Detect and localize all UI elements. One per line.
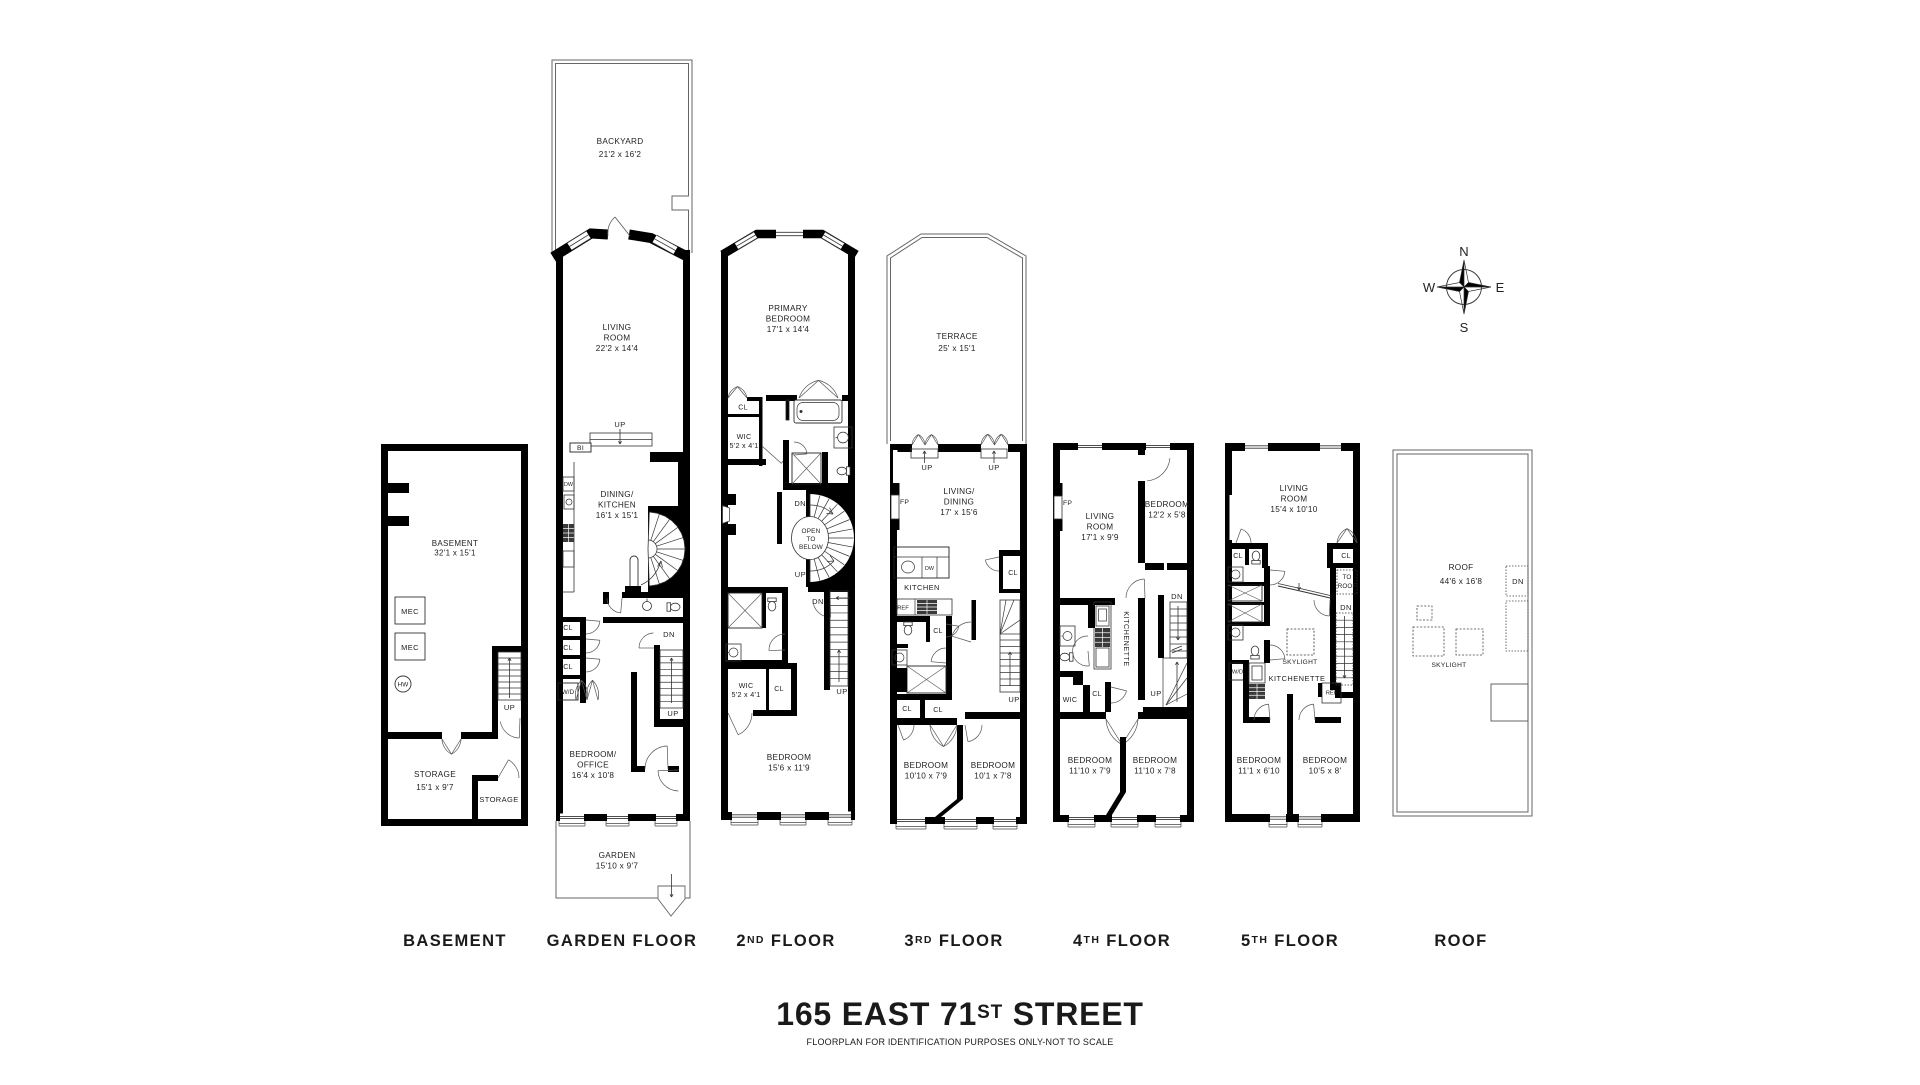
svg-text:PRIMARY: PRIMARY xyxy=(768,304,807,313)
svg-text:UP: UP xyxy=(614,420,625,429)
svg-text:TERRACE: TERRACE xyxy=(936,332,977,341)
svg-text:BI: BI xyxy=(577,445,584,452)
svg-text:10'1 x 7'8: 10'1 x 7'8 xyxy=(974,772,1012,781)
svg-text:CL: CL xyxy=(1233,553,1243,560)
svg-text:CL: CL xyxy=(933,707,943,714)
svg-text:KITCHEN: KITCHEN xyxy=(904,583,940,592)
svg-text:BEDROOM: BEDROOM xyxy=(904,761,948,770)
svg-text:15'6 x 11'9: 15'6 x 11'9 xyxy=(768,764,810,773)
svg-text:FLOORPLAN FOR IDENTIFICATION P: FLOORPLAN FOR IDENTIFICATION PURPOSES ON… xyxy=(807,1037,1114,1047)
svg-text:UP: UP xyxy=(1150,689,1161,698)
svg-text:DW: DW xyxy=(564,482,574,488)
svg-text:5'2 x 4'1: 5'2 x 4'1 xyxy=(729,441,758,450)
svg-text:KITCHENETTE: KITCHENETTE xyxy=(1122,611,1131,666)
svg-text:BEDROOM: BEDROOM xyxy=(1133,756,1177,765)
svg-text:STORAGE: STORAGE xyxy=(479,795,518,804)
svg-text:CL: CL xyxy=(1008,570,1018,577)
svg-text:DW: DW xyxy=(925,566,935,572)
svg-text:UP: UP xyxy=(504,703,515,712)
svg-text:W/D: W/D xyxy=(1232,670,1243,676)
svg-text:MEC: MEC xyxy=(401,643,419,652)
svg-text:OPEN: OPEN xyxy=(802,528,821,535)
svg-text:17'1 x 9'9: 17'1 x 9'9 xyxy=(1081,533,1119,542)
svg-text:DINING: DINING xyxy=(944,498,974,507)
svg-text:ROOM: ROOM xyxy=(604,334,631,343)
svg-text:UP: UP xyxy=(988,463,999,472)
svg-text:ROOM: ROOM xyxy=(1281,495,1308,504)
svg-text:GARDEN: GARDEN xyxy=(599,851,636,860)
svg-text:25' x 15'1: 25' x 15'1 xyxy=(938,344,976,353)
svg-text:WIC: WIC xyxy=(1063,697,1078,704)
svg-text:17' x 15'6: 17' x 15'6 xyxy=(940,508,978,517)
svg-text:11'1 x 6'10: 11'1 x 6'10 xyxy=(1238,767,1280,776)
svg-text:21'2 x 16'2: 21'2 x 16'2 xyxy=(599,150,642,159)
svg-text:DN: DN xyxy=(1171,592,1183,601)
svg-text:CL: CL xyxy=(563,625,573,632)
svg-text:KITCHENETTE: KITCHENETTE xyxy=(1269,674,1326,683)
svg-text:DN: DN xyxy=(1512,577,1524,586)
svg-text:BEDROOM: BEDROOM xyxy=(767,753,811,762)
svg-text:REF: REF xyxy=(1326,691,1338,697)
svg-text:15'4 x 10'10: 15'4 x 10'10 xyxy=(1270,505,1317,514)
svg-text:UP: UP xyxy=(667,709,678,718)
svg-text:BACKYARD: BACKYARD xyxy=(597,137,644,146)
svg-text:W/D: W/D xyxy=(562,689,575,696)
svg-text:ROOF: ROOF xyxy=(1449,563,1474,572)
svg-text:E: E xyxy=(1496,280,1505,295)
svg-text:BEDROOM: BEDROOM xyxy=(1145,500,1189,509)
svg-text:MEC: MEC xyxy=(401,607,419,616)
svg-text:OFFICE: OFFICE xyxy=(577,761,609,770)
svg-text:DN: DN xyxy=(663,630,675,639)
svg-text:32'1 x 15'1: 32'1 x 15'1 xyxy=(434,549,476,558)
svg-text:DN: DN xyxy=(794,499,806,508)
svg-text:BEDROOM/: BEDROOM/ xyxy=(570,750,617,759)
svg-text:CL: CL xyxy=(933,628,943,635)
svg-text:W: W xyxy=(1423,280,1436,295)
svg-text:12'2 x 5'8: 12'2 x 5'8 xyxy=(1148,511,1186,520)
svg-text:15'10 x 9'7: 15'10 x 9'7 xyxy=(596,862,639,871)
svg-text:BELOW: BELOW xyxy=(799,544,824,551)
svg-text:DN: DN xyxy=(1340,603,1352,612)
svg-text:S: S xyxy=(1460,320,1469,335)
svg-text:N: N xyxy=(1459,244,1468,259)
svg-text:15'1 x 9'7: 15'1 x 9'7 xyxy=(416,783,454,792)
svg-text:10'5 x 8': 10'5 x 8' xyxy=(1309,767,1342,776)
svg-text:CL: CL xyxy=(738,405,748,412)
svg-text:SKYLIGHT: SKYLIGHT xyxy=(1431,662,1466,669)
svg-text:HW: HW xyxy=(397,682,409,689)
svg-text:BEDROOM: BEDROOM xyxy=(766,315,810,324)
svg-text:16'1 x 15'1: 16'1 x 15'1 xyxy=(596,511,639,520)
svg-text:CL: CL xyxy=(563,664,573,671)
svg-text:BASEMENT: BASEMENT xyxy=(403,932,507,950)
svg-text:BASEMENT: BASEMENT xyxy=(432,539,478,548)
svg-text:ROOM: ROOM xyxy=(1087,523,1114,532)
svg-text:LIVING: LIVING xyxy=(1086,512,1115,521)
svg-text:5'2 x 4'1: 5'2 x 4'1 xyxy=(731,690,760,699)
svg-text:11'10 x 7'8: 11'10 x 7'8 xyxy=(1134,767,1176,776)
svg-text:11'10 x 7'9: 11'10 x 7'9 xyxy=(1069,767,1111,776)
svg-text:STORAGE: STORAGE xyxy=(414,770,456,779)
svg-text:FP: FP xyxy=(900,499,909,506)
svg-text:KITCHEN: KITCHEN xyxy=(598,501,636,510)
svg-text:DINING/: DINING/ xyxy=(600,490,633,499)
svg-text:FP: FP xyxy=(1063,500,1072,507)
svg-text:CL: CL xyxy=(774,686,784,693)
svg-text:REF: REF xyxy=(897,606,909,612)
svg-text:ROOF: ROOF xyxy=(1338,583,1357,590)
svg-text:16'4 x 10'8: 16'4 x 10'8 xyxy=(572,771,615,780)
svg-text:UP: UP xyxy=(921,463,932,472)
svg-text:UP: UP xyxy=(1008,695,1019,704)
svg-text:CL: CL xyxy=(563,645,573,652)
svg-text:165 EAST 71ST STREET: 165 EAST 71ST STREET xyxy=(776,996,1144,1032)
svg-text:CL: CL xyxy=(1092,691,1102,698)
svg-text:CL: CL xyxy=(902,706,912,713)
svg-text:10'10 x 7'9: 10'10 x 7'9 xyxy=(905,772,948,781)
svg-text:22'2 x 14'4: 22'2 x 14'4 xyxy=(596,344,639,353)
svg-text:CL: CL xyxy=(1341,553,1351,560)
svg-text:UP: UP xyxy=(836,687,847,696)
svg-text:LIVING: LIVING xyxy=(603,323,632,332)
svg-text:GARDEN FLOOR: GARDEN FLOOR xyxy=(547,932,698,950)
svg-text:TO: TO xyxy=(1343,574,1352,581)
svg-text:BEDROOM: BEDROOM xyxy=(1237,756,1281,765)
svg-text:SKYLIGHT: SKYLIGHT xyxy=(1282,659,1317,666)
svg-text:WIC: WIC xyxy=(739,681,754,690)
svg-text:LIVING: LIVING xyxy=(1280,484,1309,493)
svg-text:LIVING/: LIVING/ xyxy=(943,487,975,496)
svg-text:17'1 x 14'4: 17'1 x 14'4 xyxy=(767,325,810,334)
svg-text:ROOF: ROOF xyxy=(1434,932,1487,950)
svg-text:BEDROOM: BEDROOM xyxy=(971,761,1015,770)
svg-text:BEDROOM: BEDROOM xyxy=(1303,756,1347,765)
svg-text:UP: UP xyxy=(795,570,806,579)
svg-text:TO: TO xyxy=(806,536,815,543)
svg-text:BEDROOM: BEDROOM xyxy=(1068,756,1112,765)
svg-text:DN: DN xyxy=(812,597,824,606)
svg-text:44'6 x 16'8: 44'6 x 16'8 xyxy=(1440,577,1483,586)
svg-text:WIC: WIC xyxy=(737,432,752,441)
